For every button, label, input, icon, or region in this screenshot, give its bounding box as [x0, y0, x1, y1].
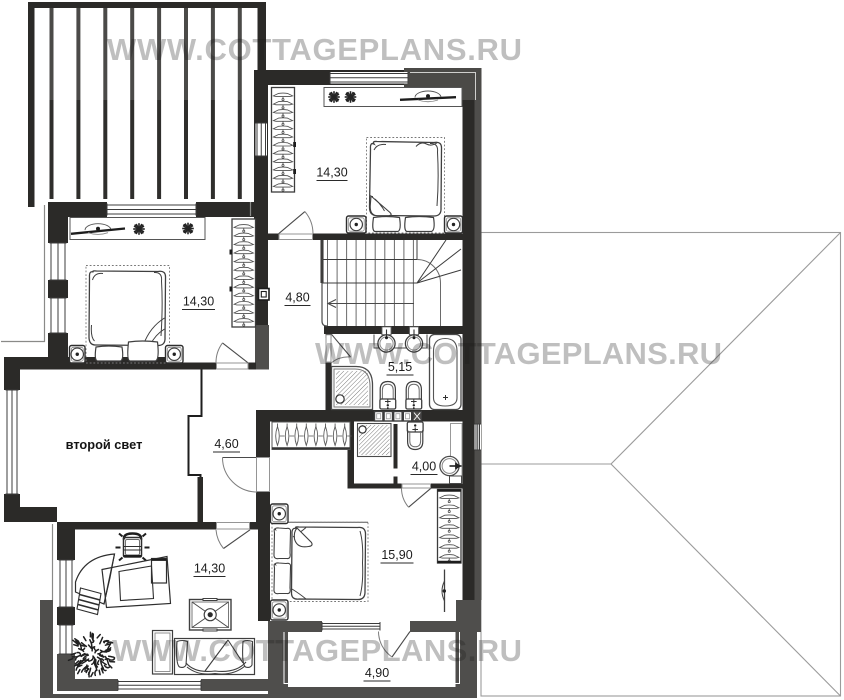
svg-text:4,60: 4,60 — [214, 437, 238, 451]
svg-text:WWW.COTTAGEPLANS.RU: WWW.COTTAGEPLANS.RU — [112, 633, 522, 668]
svg-text:WWW.COTTAGEPLANS.RU: WWW.COTTAGEPLANS.RU — [107, 32, 522, 67]
svg-text:15,90: 15,90 — [381, 548, 412, 562]
svg-text:WWW.COTTAGEPLANS.RU: WWW.COTTAGEPLANS.RU — [315, 336, 722, 371]
svg-text:4,90: 4,90 — [365, 666, 389, 680]
svg-text:4,00: 4,00 — [412, 460, 436, 474]
svg-text:14,30: 14,30 — [194, 562, 225, 576]
svg-text:14,30: 14,30 — [316, 166, 347, 180]
svg-text:второй свет: второй свет — [66, 437, 143, 452]
svg-text:4,80: 4,80 — [285, 291, 309, 305]
svg-text:14,30: 14,30 — [183, 295, 214, 309]
